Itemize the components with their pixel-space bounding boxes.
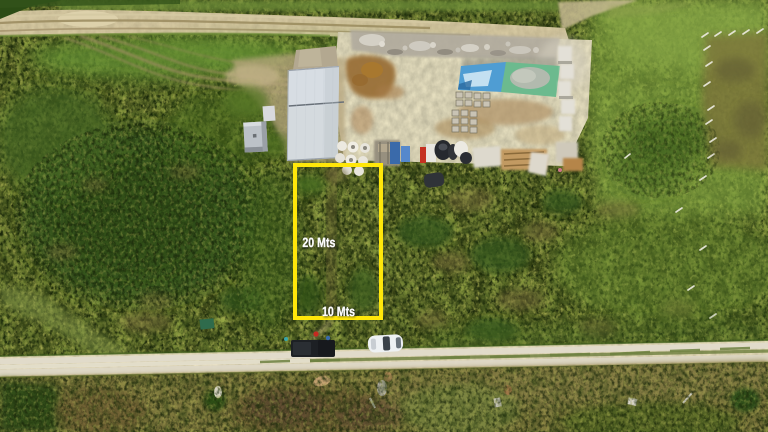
svg-text:10 Mts: 10 Mts — [322, 304, 355, 319]
svg-text:20 Mts: 20 Mts — [302, 235, 335, 250]
